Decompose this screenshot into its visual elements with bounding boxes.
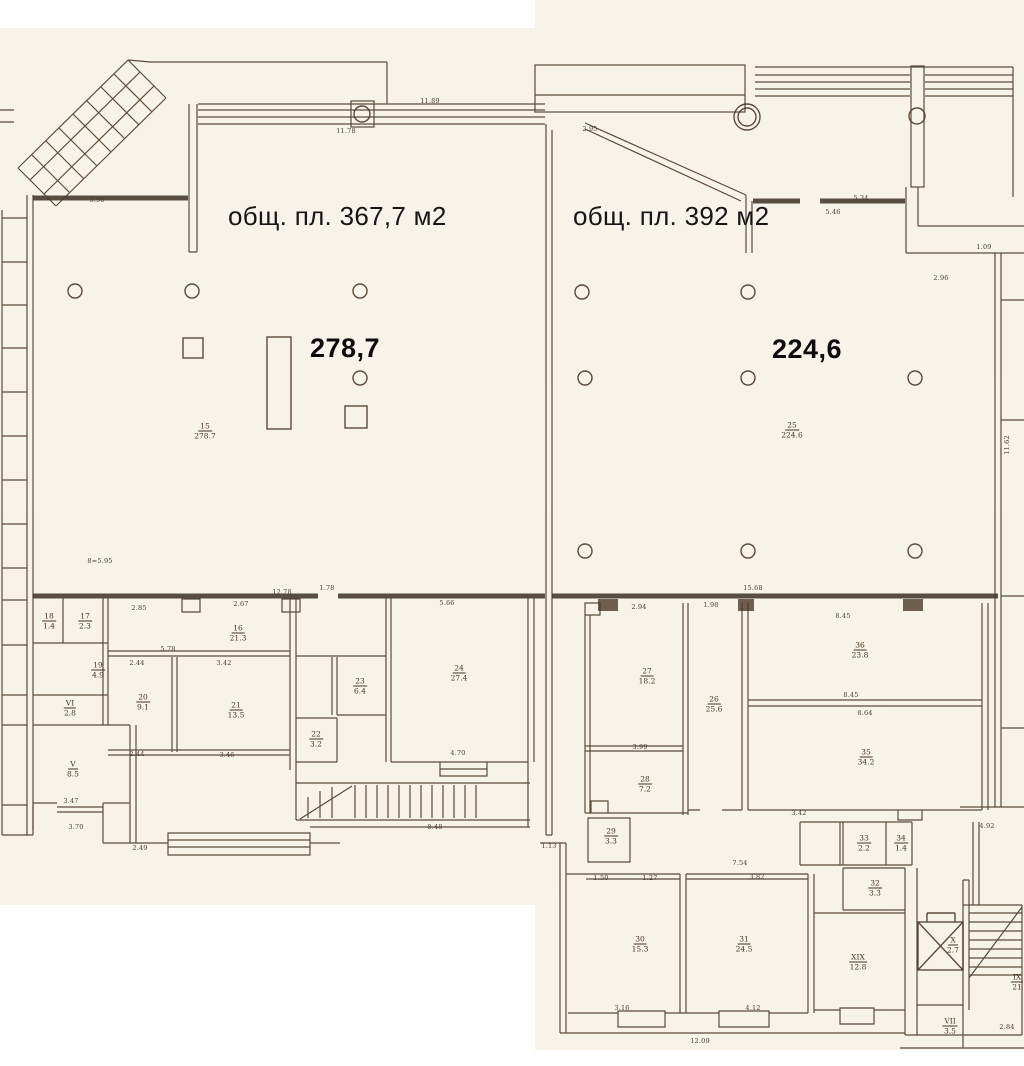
right-hall-area-value: 224,6: [772, 334, 842, 365]
room-label: 287.2: [638, 775, 652, 794]
dimension-label: 3.70: [68, 823, 83, 831]
dimension-label: 2.49: [132, 844, 147, 852]
dimension-label: 1.50: [593, 874, 608, 882]
dimension-label: 5.66: [439, 599, 454, 607]
dimension-label: 11.89: [420, 97, 440, 105]
dimension-label: 8.45: [843, 691, 858, 699]
column-icon: [354, 106, 370, 122]
room-label: 172.3: [78, 612, 92, 631]
dimension-label: 15.68: [743, 584, 763, 592]
dimension-label: 1.09: [976, 243, 991, 251]
wall-pilaster-tabs: [598, 599, 923, 611]
dimension-label: 5.90: [89, 196, 104, 204]
dimension-label: 4.12: [745, 1004, 760, 1012]
room-label: 3623.8: [852, 641, 869, 660]
thick-walls: [33, 198, 998, 596]
dimension-label: 2.94: [631, 603, 646, 611]
dimension-label: 7.54: [732, 859, 747, 867]
dimension-label: 1.98: [703, 601, 718, 609]
room-label: 332.2: [857, 834, 871, 853]
dimension-label: 11.78: [336, 127, 356, 135]
dimension-label: 3.82: [749, 873, 764, 881]
right-unit-total-area-label: общ. пл. 392 м2: [573, 201, 769, 232]
room-label: 2113.5: [228, 701, 245, 720]
room-label: 223.2: [309, 730, 323, 749]
room-label: 341.4: [894, 834, 908, 853]
dimension-label: 3.42: [216, 659, 231, 667]
pillar: [267, 337, 291, 429]
dimension-label: 2.44: [129, 659, 144, 667]
dimension-label: 4.70: [450, 749, 465, 757]
room-label: 209.1: [136, 693, 150, 712]
room-label: 236.4: [353, 677, 367, 696]
dimension-label: 4.92: [979, 822, 994, 830]
dimension-label: 2.95: [582, 125, 597, 133]
dimension-label: 1.27: [642, 874, 657, 882]
room-label: IX21: [1011, 973, 1023, 992]
room-label: XIX12.8: [849, 953, 867, 972]
room-label: VI2.8: [64, 699, 76, 718]
room-label: 1621.3: [230, 624, 247, 643]
dimension-label: 1.13: [541, 842, 556, 850]
dimension-label: 2.96: [933, 274, 948, 282]
square-column-icon: [183, 338, 203, 358]
dimension-label: 3.16: [614, 1004, 629, 1012]
dimension-label: 2.84: [999, 1023, 1014, 1031]
square-column-icon: [345, 406, 367, 428]
room-label: X2.7: [947, 936, 959, 955]
dimension-label: 3.42: [791, 809, 806, 817]
room-label: 2427.4: [451, 664, 468, 683]
dimension-label: 5.46: [825, 208, 840, 216]
floor-plan-drawing: [0, 0, 1024, 1066]
dimension-label: 3.46: [219, 751, 234, 759]
dimension-label: 5.34: [853, 194, 868, 202]
room-label: 15278.7: [194, 422, 215, 441]
column-icon: [738, 108, 756, 126]
dimension-label: 1.78: [319, 584, 334, 592]
room-label: 3124.5: [736, 935, 753, 954]
staircase-top-left: [18, 60, 166, 206]
floor-plan-scan: общ. пл. 367,7 м2 общ. пл. 392 м2 278,7 …: [0, 0, 1024, 1066]
left-unit-total-area-label: общ. пл. 367,7 м2: [228, 201, 447, 232]
room-label: 323.3: [868, 879, 882, 898]
dimension-label: 12.78: [272, 588, 292, 596]
room-label: 3534.2: [858, 748, 875, 767]
dimension-label: 12.09: [690, 1037, 710, 1045]
room-label: V8.5: [67, 760, 79, 779]
dimension-label: 8=5.95: [87, 557, 112, 565]
room-label: 2625.6: [706, 695, 723, 714]
dimension-label: 2.85: [131, 604, 146, 612]
dimension-label: 3.99: [632, 743, 647, 751]
walls: [0, 62, 1024, 1048]
room-label: VII3.5: [942, 1017, 957, 1036]
dimension-label: 2.67: [233, 600, 248, 608]
dimension-label: 3.47: [63, 797, 78, 805]
dimension-label: 8.45: [835, 612, 850, 620]
dimension-label: 5.78: [160, 645, 175, 653]
room-label: 194.9: [91, 661, 105, 680]
dimension-label: 8.64: [857, 709, 872, 717]
dimension-label: 11.62: [1003, 435, 1011, 455]
dimension-label: 8.48: [427, 823, 442, 831]
room-label: 2718.2: [639, 667, 656, 686]
room-label: 25224.6: [781, 421, 802, 440]
room-label: 293.3: [604, 827, 618, 846]
dimension-label: 2.44: [129, 750, 144, 758]
room-label: 181.4: [42, 612, 56, 631]
left-hall-area-value: 278,7: [310, 333, 380, 364]
room-label: 3015.3: [632, 935, 649, 954]
